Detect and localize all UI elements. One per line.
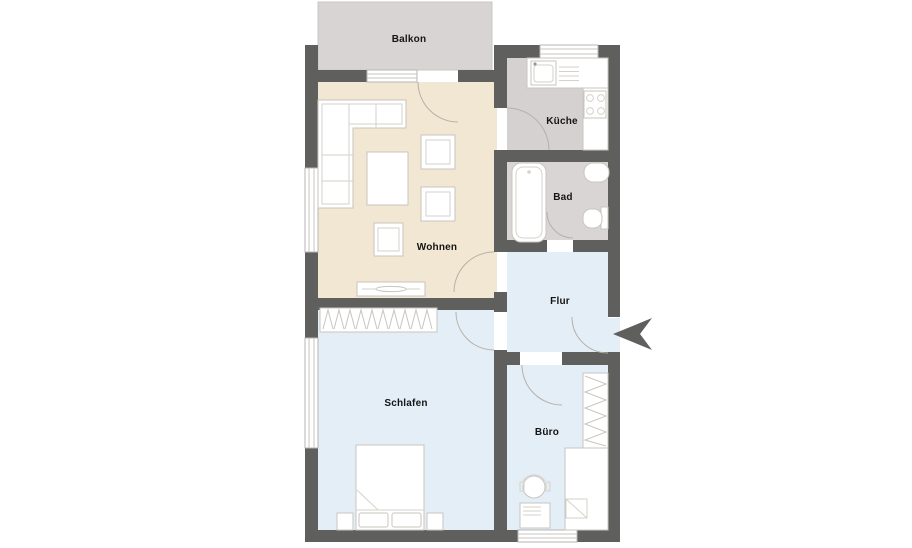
pillow-right [392, 513, 421, 527]
room-label-schlafen: Schlafen [384, 398, 427, 409]
room-label-bad: Bad [553, 192, 573, 203]
window-wohnen-left [305, 168, 318, 252]
wall-kitchen-left-upper [494, 45, 507, 108]
wall-bottom-left [305, 530, 518, 542]
bathtub-drain [527, 170, 531, 174]
toilet [583, 207, 608, 229]
wall-schlafen-buero [494, 350, 507, 530]
wall-right-bottom [608, 352, 620, 542]
window-buero [518, 530, 577, 542]
room-label-buero: Büro [535, 427, 559, 438]
room-label-flur: Flur [550, 296, 570, 307]
wall-left-mid [305, 252, 318, 338]
faucet-dot [533, 62, 536, 65]
wall-top-living-left [318, 70, 367, 82]
nightstand-right [427, 513, 443, 530]
wall-kueche-bad [494, 150, 620, 162]
wall-bottom-right [577, 530, 620, 542]
tv-on-sideboard [376, 286, 406, 291]
wall-left-bottom [305, 448, 318, 542]
wall-flur-buero-left [494, 352, 520, 365]
coffee-table [367, 152, 408, 205]
wall-top-living-right [458, 70, 494, 82]
pillow-left [359, 513, 388, 527]
floor-plan-canvas: Balkon Küche Bad Wohnen Flur Schlafen Bü… [0, 0, 912, 548]
window-balkon [367, 70, 417, 82]
wall-right-top [608, 45, 620, 317]
washbasin [584, 163, 609, 182]
bathtub [512, 163, 546, 242]
room-label-kueche: Küche [546, 116, 578, 127]
stove [584, 91, 606, 118]
wall-left-top [305, 45, 318, 168]
room-label-balkon: Balkon [392, 34, 427, 45]
floor-plan: Balkon Küche Bad Wohnen Flur Schlafen Bü… [0, 0, 912, 548]
wall-kitchen-left-lower [494, 150, 507, 252]
window-schlafen-left [305, 338, 318, 448]
nightstand-left [337, 513, 353, 530]
window-kueche [540, 45, 598, 58]
wall-flur-left-stub [494, 292, 507, 312]
room-label-wohnen: Wohnen [417, 242, 457, 253]
